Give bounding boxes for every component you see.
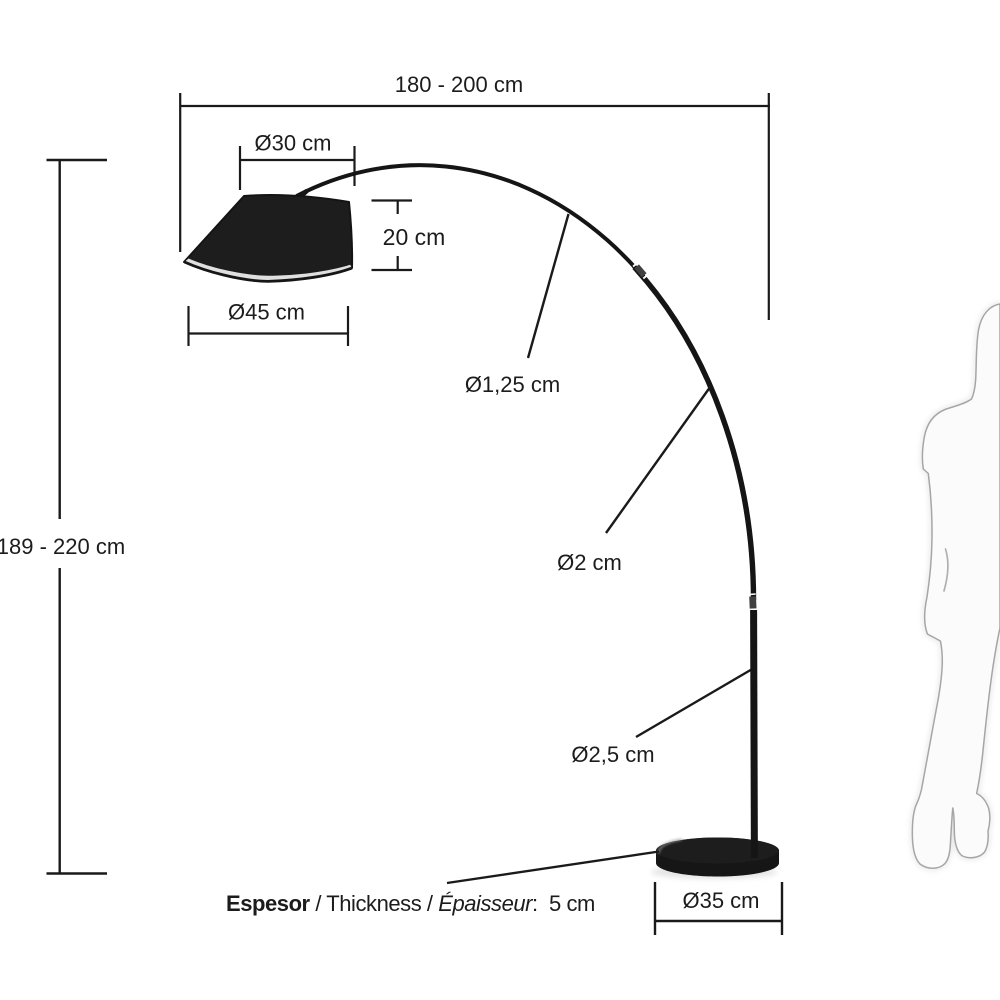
svg-text:Ø1,25 cm: Ø1,25 cm — [465, 372, 560, 397]
svg-text:180 - 200 cm: 180 - 200 cm — [395, 72, 523, 97]
svg-text:20 cm: 20 cm — [383, 224, 446, 250]
svg-text:Ø2 cm: Ø2 cm — [557, 550, 622, 575]
svg-text:Ø35 cm: Ø35 cm — [682, 888, 759, 913]
svg-text:Ø30 cm: Ø30 cm — [254, 131, 331, 156]
svg-text:Ø45 cm: Ø45 cm — [228, 300, 305, 325]
svg-text:189 - 220 cm: 189 - 220 cm — [0, 534, 125, 559]
svg-text:Ø2,5 cm: Ø2,5 cm — [571, 742, 654, 767]
svg-text:Espesor / Thickness / Épaisseu: Espesor / Thickness / Épaisseur: 5 cm — [226, 891, 595, 916]
